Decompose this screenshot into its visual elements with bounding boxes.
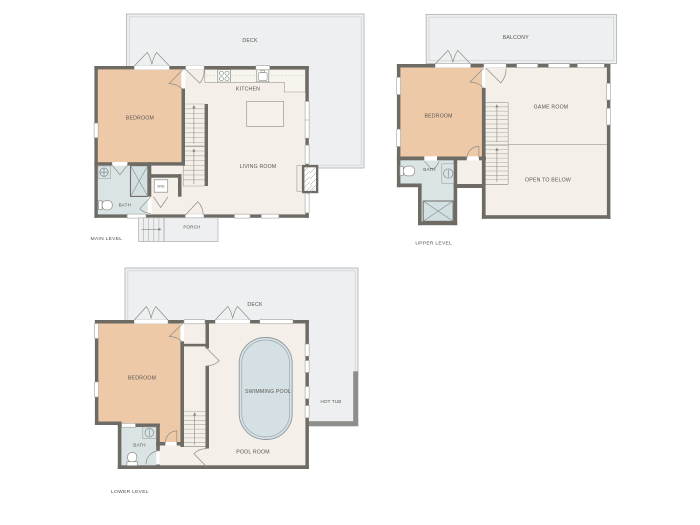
svg-text:GAME ROOM: GAME ROOM [534,105,569,111]
svg-text:HOT TUB: HOT TUB [321,399,342,404]
svg-text:PORCH: PORCH [183,225,200,230]
svg-text:BATH: BATH [119,202,131,207]
svg-text:BATH: BATH [423,167,435,172]
svg-text:POOL ROOM: POOL ROOM [236,449,270,455]
svg-text:DECK: DECK [242,38,258,44]
svg-text:BATH: BATH [133,443,145,448]
svg-text:W/D: W/D [157,184,165,188]
svg-text:LOWER LEVEL: LOWER LEVEL [111,489,149,495]
svg-text:KITCHEN: KITCHEN [236,87,260,93]
svg-text:BALCONY: BALCONY [503,35,530,41]
svg-text:BEDROOM: BEDROOM [128,376,156,382]
svg-text:LIVING ROOM: LIVING ROOM [240,164,277,170]
svg-text:OPEN TO BELOW: OPEN TO BELOW [525,178,571,184]
svg-text:MAIN LEVEL: MAIN LEVEL [91,236,123,242]
svg-text:DECK: DECK [247,302,263,308]
svg-text:UPPER LEVEL: UPPER LEVEL [415,240,452,246]
svg-text:BEDROOM: BEDROOM [424,113,452,119]
svg-text:BEDROOM: BEDROOM [126,116,154,122]
svg-text:SWIMMING POOL: SWIMMING POOL [245,389,291,395]
